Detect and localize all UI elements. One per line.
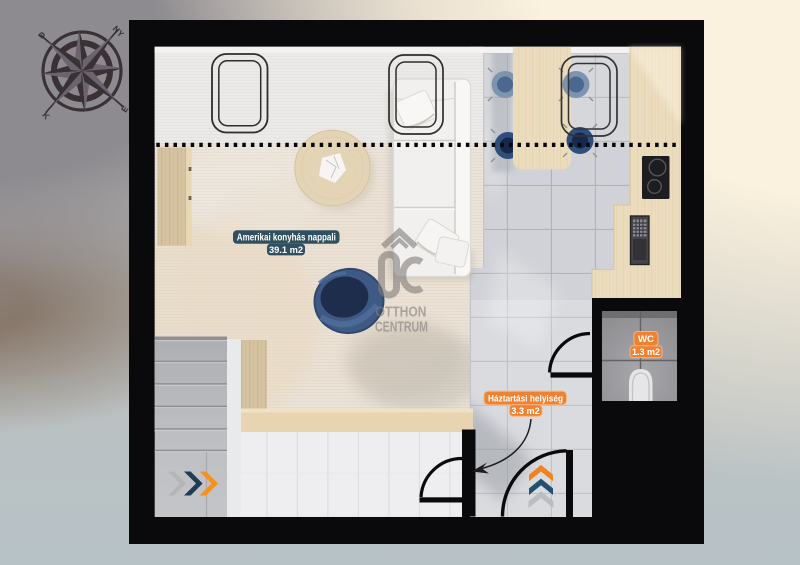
- svg-text:NY: NY: [111, 24, 127, 40]
- svg-text:Amerikai konyhás nappali: Amerikai konyhás nappali: [237, 233, 336, 244]
- svg-text:K: K: [40, 110, 52, 122]
- svg-text:3.3 m2: 3.3 m2: [511, 406, 540, 416]
- svg-text:CENTRUM: CENTRUM: [375, 320, 428, 336]
- svg-text:WC: WC: [638, 334, 654, 345]
- svg-text:É: É: [119, 104, 131, 115]
- svg-text:OTTHON: OTTHON: [376, 305, 427, 321]
- svg-text:39.1 m2: 39.1 m2: [269, 245, 303, 255]
- svg-text:1.3 m2: 1.3 m2: [632, 347, 660, 357]
- svg-text:Háztartási helyiség: Háztartási helyiség: [488, 394, 563, 405]
